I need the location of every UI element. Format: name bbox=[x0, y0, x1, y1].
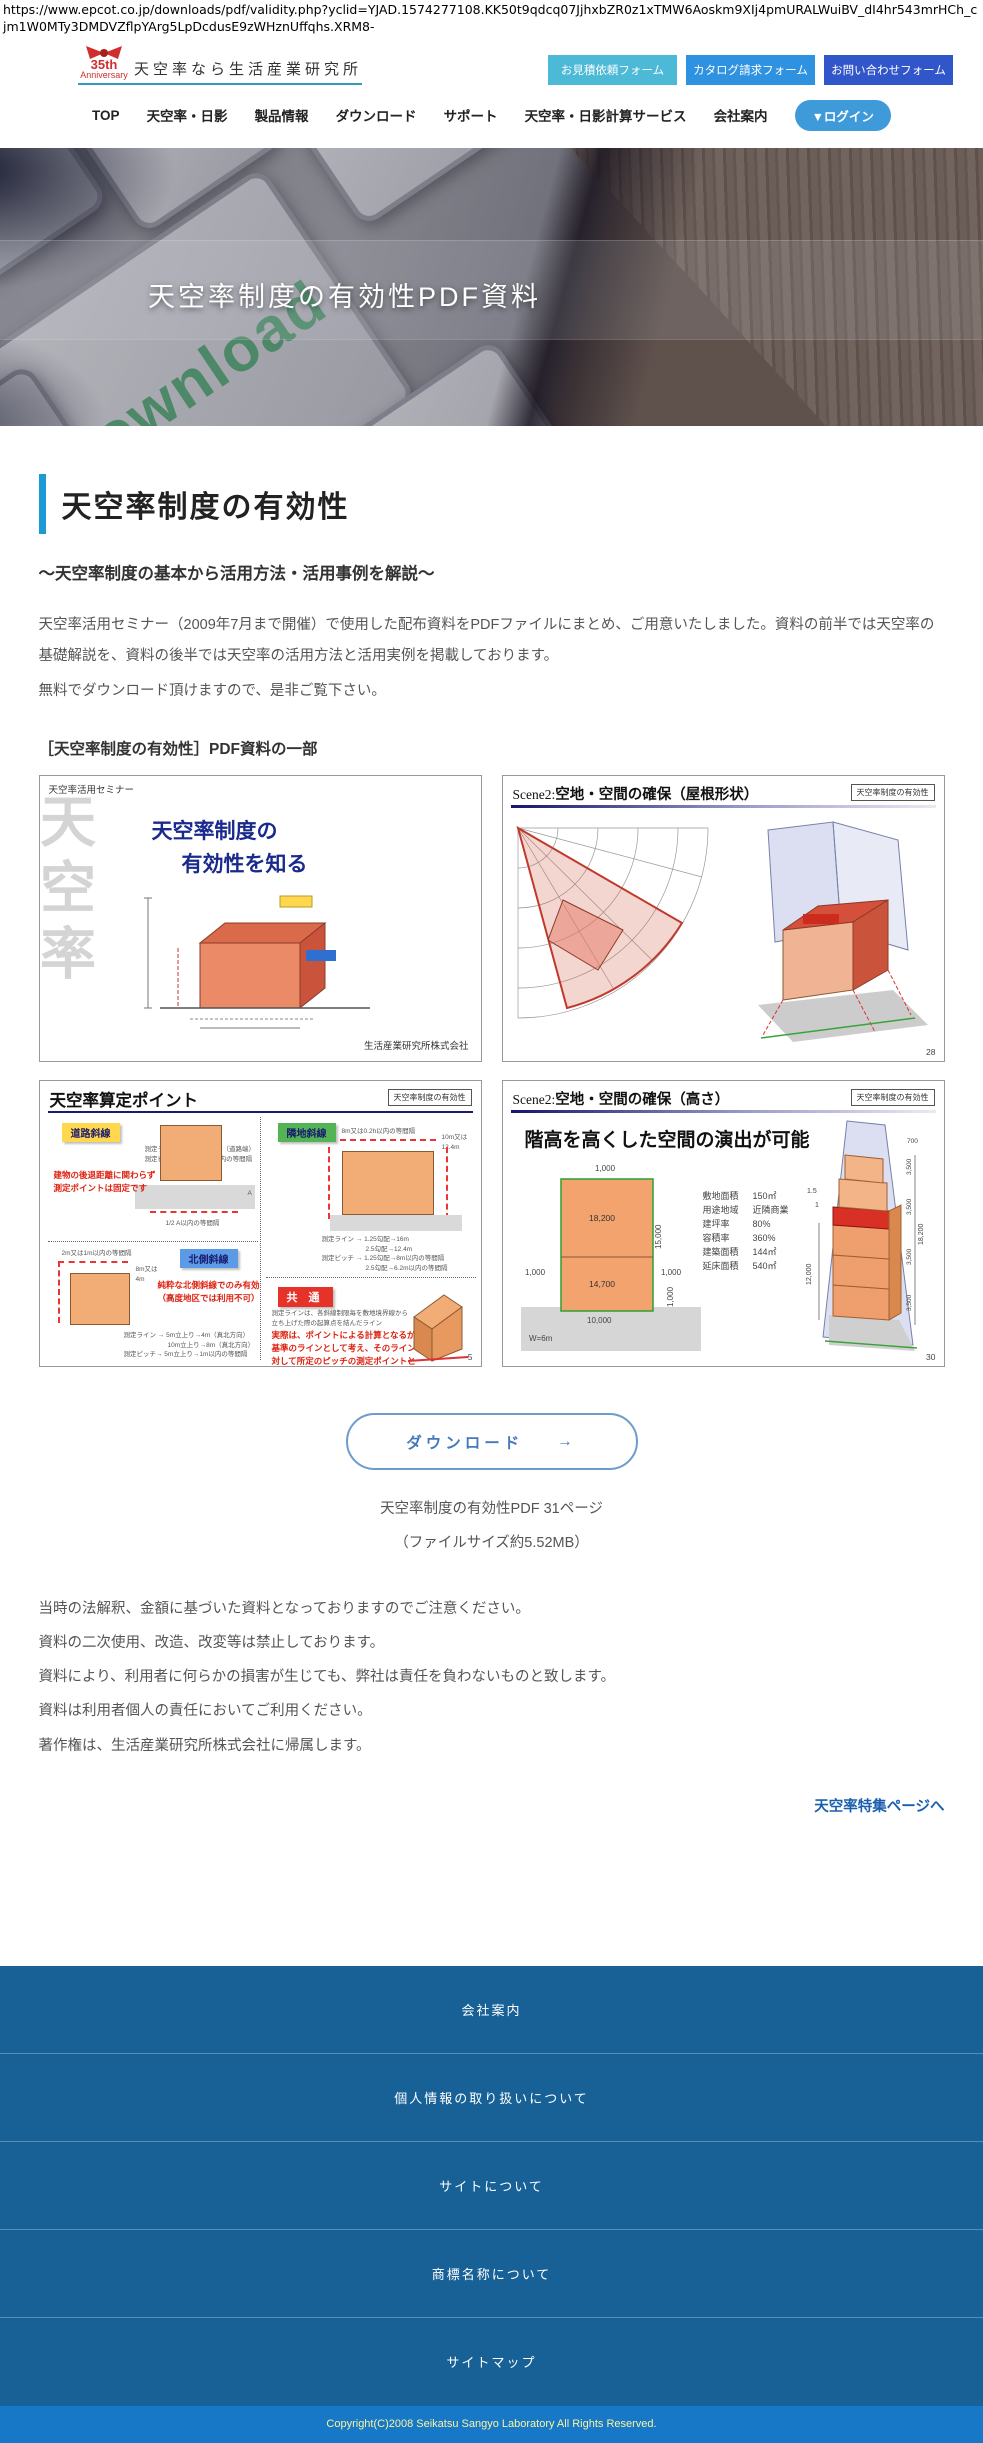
page-title: 天空率制度の有効性 bbox=[39, 474, 945, 534]
nav-item-top[interactable]: TOP bbox=[92, 108, 120, 123]
catalog-form-button[interactable]: カタログ請求フォーム bbox=[686, 55, 815, 85]
header-buttons: お見積依頼フォーム カタログ請求フォーム お問い合わせフォーム bbox=[548, 55, 953, 85]
road-note: 建物の後退距離に関わらず 測定ポイントは固定です bbox=[54, 1169, 156, 1195]
svg-text:18,200: 18,200 bbox=[918, 1224, 925, 1246]
download-caption-size: （ファイルサイズ約5.52MB） bbox=[39, 1531, 945, 1552]
header-rule bbox=[511, 1110, 936, 1113]
estimate-form-button[interactable]: お見積依頼フォーム bbox=[548, 55, 677, 85]
common-red-note: 実際は、ポイントによる計算となるが 基準のラインとして考え、そのラインに 対して… bbox=[272, 1329, 425, 1367]
svg-text:700: 700 bbox=[907, 1138, 918, 1145]
svg-text:3,500: 3,500 bbox=[906, 1159, 913, 1176]
site-plan-diagram: 1,000 18,200 15,000 1,000 14,700 1,000 1… bbox=[521, 1157, 701, 1357]
road-slant-chip: 道路斜線 bbox=[62, 1123, 120, 1142]
main-nav: TOP 天空率・日影 製品情報 ダウンロード サポート 天空率・日影計算サービス… bbox=[0, 91, 983, 138]
iso-building-diagram: 12,000 18,200 3,500 3,500 3,500 3,500 70… bbox=[789, 1115, 945, 1365]
measure-line-adjacent-top bbox=[340, 1139, 436, 1141]
svg-text:1.5: 1.5 bbox=[807, 1188, 817, 1195]
scene-prefix: Scene2: bbox=[513, 1092, 556, 1107]
road-bottom-annotation: 1/2 A以内の等間隔 bbox=[166, 1219, 220, 1228]
svg-text:1: 1 bbox=[815, 1202, 819, 1209]
header-rule bbox=[511, 805, 936, 808]
note-line: 当時の法解釈、金額に基づいた資料となっておりますのでご注意ください。 bbox=[39, 1592, 945, 1626]
adjacent-top-annotation: 8m又は0.2h以内の等間隔 bbox=[342, 1127, 416, 1136]
quadrant-divider-right bbox=[266, 1277, 476, 1278]
site-logo[interactable]: 35th Anniversary 天空率なら生活産業研究所 bbox=[78, 46, 362, 85]
validity-badge: 天空率制度の有効性 bbox=[851, 784, 935, 801]
adjacent-slant-chip: 隣地斜線 bbox=[278, 1123, 336, 1142]
pdf-preview-scene2-height: Scene2:空地・空間の確保（高さ） 天空率制度の有効性 階高を高くした空間の… bbox=[502, 1080, 945, 1367]
pdf-preview-measurement-points: 天空率算定ポイント 天空率制度の有効性 道路斜線 測定ライン→道路の反対側（道路… bbox=[39, 1080, 482, 1367]
footer-link-company[interactable]: 会社案内 bbox=[0, 1966, 983, 2054]
download-caption-pages: 天空率制度の有効性PDF 31ページ bbox=[39, 1497, 945, 1518]
panel4-headline: 階高を高くした空間の演出が可能 bbox=[525, 1125, 810, 1152]
footer-nav: 会社案内 個人情報の取り扱いについて サイトについて 商標名称について サイトマ… bbox=[0, 1966, 983, 2406]
adjacent-lines: 測定ライン → 1.25勾配→16m 2.5勾配→12.4m 測定ピッチ → 1… bbox=[322, 1235, 448, 1273]
preview-section-label: ［天空率制度の有効性］PDF資料の一部 bbox=[39, 737, 945, 759]
footer-link-trademark[interactable]: 商標名称について bbox=[0, 2230, 983, 2318]
footer-link-about-site[interactable]: サイトについて bbox=[0, 2142, 983, 2230]
scene-title: 空地・空間の確保（屋根形状） bbox=[555, 787, 758, 803]
north-slant-chip: 北側斜線 bbox=[180, 1249, 238, 1268]
svg-text:10,000: 10,000 bbox=[587, 1316, 612, 1325]
seminar-title: 天空率制度の 有効性を知る bbox=[152, 816, 308, 881]
tenkuritsu-watermark: 天空率 bbox=[39, 792, 105, 990]
measure-line-adjacent-left bbox=[328, 1147, 330, 1219]
svg-text:15,000: 15,000 bbox=[654, 1224, 663, 1249]
nav-item-download[interactable]: ダウンロード bbox=[336, 105, 417, 125]
road-A-label: A bbox=[248, 1189, 252, 1198]
adjacent-ground bbox=[330, 1215, 462, 1231]
download-button[interactable]: ダウンロード → bbox=[346, 1413, 638, 1470]
building-rect-adjacent bbox=[342, 1151, 434, 1215]
login-button[interactable]: ▼ログイン bbox=[795, 100, 891, 131]
spec-table: 敷地面積150㎡ 用途地域近隣商業 建坪率80% 容積率360% 建築面積144… bbox=[703, 1189, 789, 1273]
skyfactor-fan-and-house-diagram bbox=[503, 810, 943, 1058]
browser-url-text: https://www.epcot.co.jp/downloads/pdf/va… bbox=[0, 0, 983, 40]
nav-item-tenkuritsu-hikage[interactable]: 天空率・日影 bbox=[147, 105, 228, 125]
common-note: 測定ラインは、各斜線制限毎を敷地境界線から 立ち上げた際の起算点を結んだライン bbox=[272, 1309, 409, 1328]
north-right-annotation: 8m又は 4m bbox=[136, 1265, 158, 1284]
intro-paragraph: 天空率活用セミナー（2009年7月まで開催）で使用した配布資料をPDFファイルに… bbox=[39, 610, 945, 672]
page-number: 5 bbox=[468, 1352, 473, 1362]
footer-link-privacy[interactable]: 個人情報の取り扱いについて bbox=[0, 2054, 983, 2142]
nav-item-support[interactable]: サポート bbox=[444, 105, 498, 125]
page-number: 30 bbox=[926, 1352, 935, 1362]
anniversary-ribbon-icon: 35th Anniversary bbox=[78, 46, 130, 80]
scene-prefix: Scene2: bbox=[513, 787, 556, 802]
quadrant-divider-left bbox=[48, 1241, 258, 1242]
note-line: 資料の二次使用、改造、改変等は禁止しております。 bbox=[39, 1626, 945, 1660]
hero-banner: Download 天空率制度の有効性PDF資料 bbox=[0, 148, 983, 426]
svg-text:1,000: 1,000 bbox=[661, 1268, 682, 1277]
pdf-preview-scene2-roof: Scene2:空地・空間の確保（屋根形状） 天空率制度の有効性 bbox=[502, 775, 945, 1062]
copyright-bar: Copyright(C)2008 Seikatsu Sangyo Laborat… bbox=[0, 2406, 983, 2443]
building-rect-north bbox=[70, 1273, 130, 1325]
logo-text: 天空率なら生活産業研究所 bbox=[134, 58, 362, 80]
panel3-title: 天空率算定ポイント bbox=[50, 1087, 199, 1111]
north-lines: 測定ライン → 5m立上り→4m（真北方向） 10m立上り→8m（真北方向） 測… bbox=[124, 1331, 255, 1359]
nav-item-calc-service[interactable]: 天空率・日影計算サービス bbox=[525, 105, 687, 125]
nav-item-company[interactable]: 会社案内 bbox=[714, 105, 768, 125]
page-subtitle: ～天空率制度の基本から活用方法・活用事例を解説～ bbox=[39, 560, 945, 584]
page-number: 28 bbox=[926, 1047, 935, 1057]
measure-line-adjacent-right bbox=[446, 1147, 448, 1219]
contact-form-button[interactable]: お問い合わせフォーム bbox=[824, 55, 953, 85]
nav-item-products[interactable]: 製品情報 bbox=[255, 105, 309, 125]
svg-text:14,700: 14,700 bbox=[589, 1279, 615, 1289]
scene2-height-header: Scene2:空地・空間の確保（高さ） bbox=[513, 1088, 730, 1109]
svg-text:3,500: 3,500 bbox=[906, 1199, 913, 1216]
scene-title: 空地・空間の確保（高さ） bbox=[555, 1092, 729, 1108]
north-note: 純粋な北側斜線でのみ有効 （高度地区では利用不可） bbox=[158, 1279, 260, 1305]
measure-line-road bbox=[150, 1211, 238, 1213]
main-content: 天空率制度の有効性 ～天空率制度の基本から活用方法・活用事例を解説～ 天空率活用… bbox=[39, 426, 945, 1966]
svg-text:3,500: 3,500 bbox=[906, 1249, 913, 1266]
note-line: 資料は利用者個人の責任においてご利用ください。 bbox=[39, 1694, 945, 1728]
validity-badge: 天空率制度の有効性 bbox=[388, 1089, 472, 1106]
svg-text:3,500: 3,500 bbox=[906, 1295, 913, 1312]
footer-link-sitemap[interactable]: サイトマップ bbox=[0, 2318, 983, 2406]
header-rule bbox=[48, 1111, 473, 1113]
disclaimer-notes: 当時の法解釈、金額に基づいた資料となっておりますのでご注意ください。 資料の二次… bbox=[39, 1592, 945, 1762]
common-chip: 共 通 bbox=[278, 1287, 333, 1307]
quadrant-divider-vertical bbox=[260, 1117, 261, 1360]
note-line: 著作権は、生活産業研究所株式会社に帰属します。 bbox=[39, 1729, 945, 1763]
pdf-preview-grid: 天空率活用セミナー 天空率 天空率制度の 有効性を知る 生活産業研究所株 bbox=[39, 775, 945, 1367]
download-button-label: ダウンロード bbox=[406, 1431, 523, 1453]
site-header: 35th Anniversary 天空率なら生活産業研究所 お見積依頼フォーム … bbox=[0, 40, 983, 91]
logo-badge-anniversary: Anniversary bbox=[78, 71, 130, 80]
svg-text:1,000: 1,000 bbox=[666, 1287, 675, 1308]
company-name: 生活産業研究所株式会社 bbox=[364, 1038, 469, 1052]
note-line: 資料により、利用者に何らかの損害が生じても、弊社は責任を負わないものと致します。 bbox=[39, 1660, 945, 1694]
svg-text:1,000: 1,000 bbox=[595, 1164, 616, 1173]
intro-paragraph-2: 無料でダウンロード頂けますので、是非ご覧下さい。 bbox=[39, 676, 945, 707]
svg-text:18,200: 18,200 bbox=[589, 1213, 615, 1223]
arrow-right-icon: → bbox=[557, 1433, 577, 1451]
validity-badge: 天空率制度の有効性 bbox=[851, 1089, 935, 1106]
measure-line-north-left bbox=[58, 1261, 60, 1323]
scene2-roof-header: Scene2:空地・空間の確保（屋根形状） bbox=[513, 783, 759, 804]
hero-title: 天空率制度の有効性PDF資料 bbox=[148, 275, 541, 314]
svg-text:W=6m: W=6m bbox=[529, 1334, 553, 1343]
building-box-diagram bbox=[130, 888, 380, 1038]
svg-text:1,000: 1,000 bbox=[525, 1268, 546, 1277]
pdf-preview-seminar-cover: 天空率活用セミナー 天空率 天空率制度の 有効性を知る 生活産業研究所株 bbox=[39, 775, 482, 1062]
svg-text:12,000: 12,000 bbox=[806, 1264, 813, 1286]
seminar-title-line2: 有効性を知る bbox=[152, 849, 308, 882]
common-house-diagram bbox=[404, 1287, 474, 1365]
north-top-annotation: 2m又は1m以内の等間隔 bbox=[62, 1249, 132, 1258]
seminar-title-line1: 天空率制度の bbox=[152, 820, 278, 843]
building-rect-road bbox=[160, 1125, 222, 1181]
logo-badge-35th: 35th bbox=[78, 58, 130, 71]
feature-page-link[interactable]: 天空率特集ページへ bbox=[39, 1795, 945, 1816]
measure-line-north-top bbox=[58, 1261, 128, 1263]
